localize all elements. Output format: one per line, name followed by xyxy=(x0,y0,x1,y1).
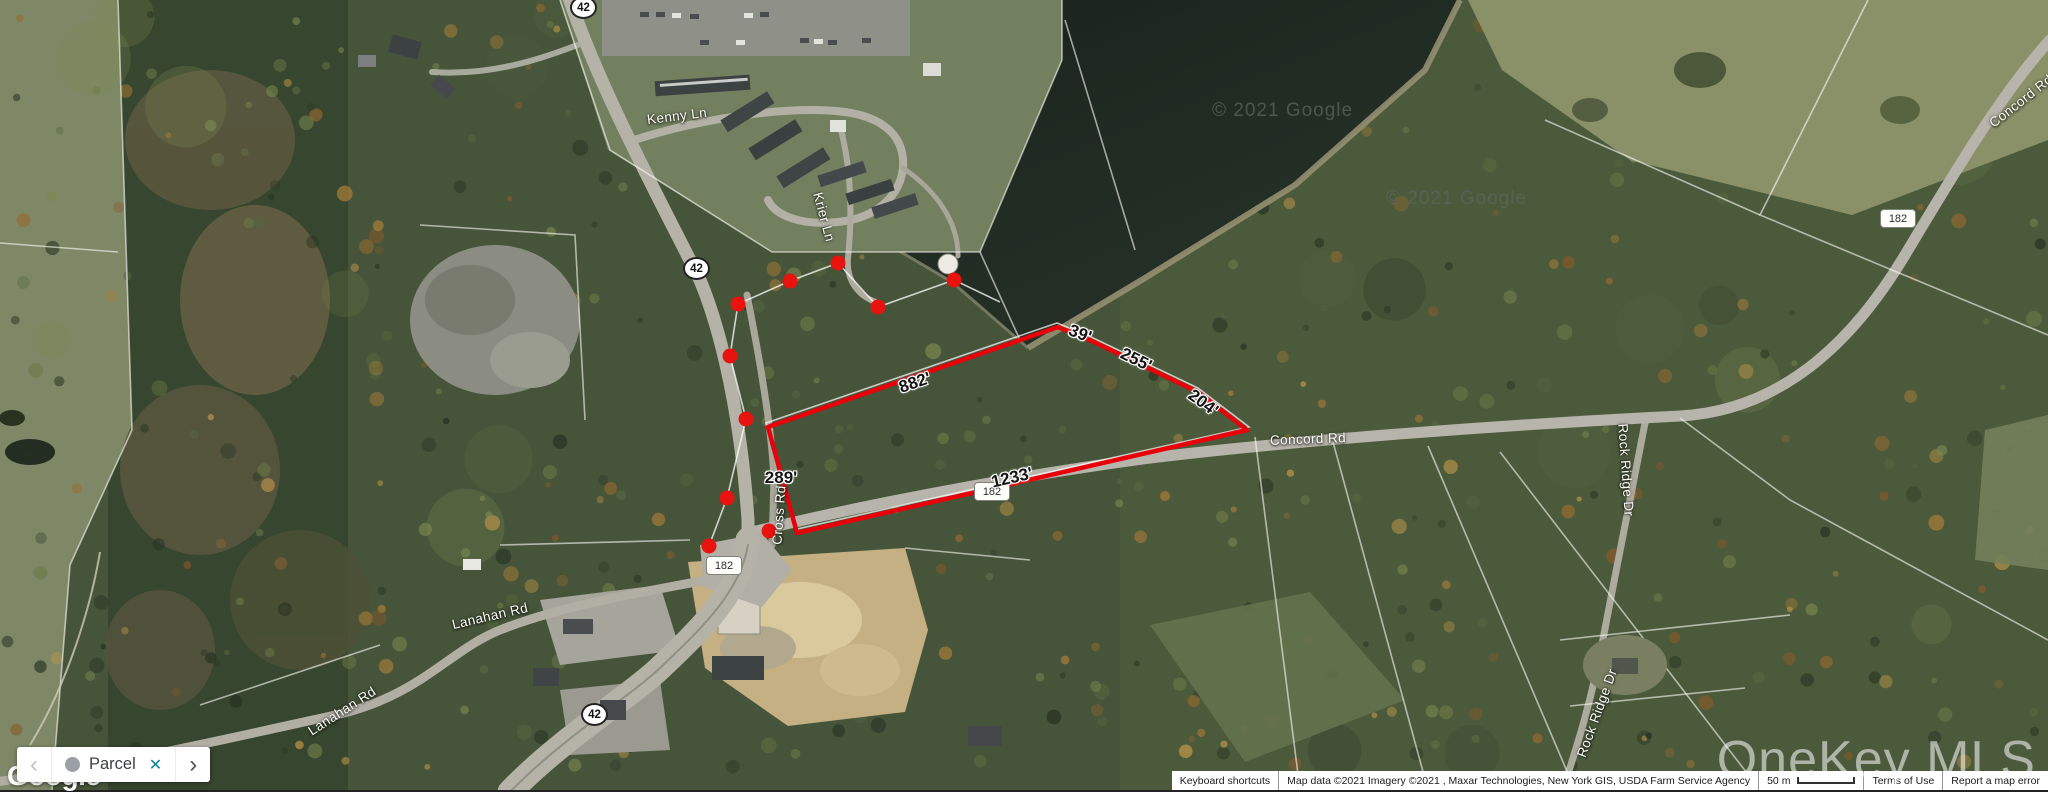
route-shield-42: 42 xyxy=(683,257,710,280)
route-shield-42-text: 42 xyxy=(588,709,601,721)
map-data-credit: Map data ©2021 Imagery ©2021 , Maxar Tec… xyxy=(1278,771,1758,790)
route-shield-182-text: 182 xyxy=(1889,213,1907,225)
previous-result-button[interactable]: ‹ xyxy=(17,747,52,782)
terms-of-use-link[interactable]: Terms of Use xyxy=(1863,771,1942,790)
route-shield-42-text: 42 xyxy=(690,263,703,275)
scale-label: 50 m xyxy=(1767,775,1790,787)
next-result-button[interactable]: › xyxy=(175,747,210,782)
google-imagery-watermark: © 2021 Google xyxy=(1386,188,1527,210)
route-shield-182: 182 xyxy=(1880,209,1916,228)
scale-bar xyxy=(1797,777,1855,784)
report-map-error-link[interactable]: Report a map error xyxy=(1942,771,2048,790)
report-map-error-text[interactable]: Report a map error xyxy=(1951,775,2040,787)
route-shield-182-text: 182 xyxy=(715,560,733,572)
satellite-map[interactable] xyxy=(0,0,2048,790)
parcel-chip-label: Parcel xyxy=(89,755,136,774)
google-imagery-watermark: © 2021 Google xyxy=(1212,100,1353,122)
pond-small xyxy=(0,410,25,426)
route-shield-42: 42 xyxy=(581,703,608,726)
route-shield-182: 182 xyxy=(706,556,742,575)
measurement-label: 289' xyxy=(765,468,797,488)
parcel-chip-body: Parcel ✕ xyxy=(52,747,175,782)
parcel-chip[interactable]: ‹ Parcel ✕ › xyxy=(17,747,210,782)
scale-control: 50 m xyxy=(1758,771,1863,790)
terms-of-use-text[interactable]: Terms of Use xyxy=(1872,775,1934,787)
parcel-marker-icon xyxy=(65,757,80,772)
close-icon[interactable]: ✕ xyxy=(149,755,162,775)
map-attribution-bar: Keyboard shortcuts Map data ©2021 Imager… xyxy=(1172,771,2048,790)
road-label-concord-rd: Concord Rd xyxy=(1270,430,1347,448)
route-shield-42-text: 42 xyxy=(577,2,590,14)
keyboard-shortcuts-button[interactable]: Keyboard shortcuts xyxy=(1172,771,1278,790)
gravel-clearing xyxy=(410,245,580,395)
meadow-patch-2 xyxy=(1975,415,2048,570)
